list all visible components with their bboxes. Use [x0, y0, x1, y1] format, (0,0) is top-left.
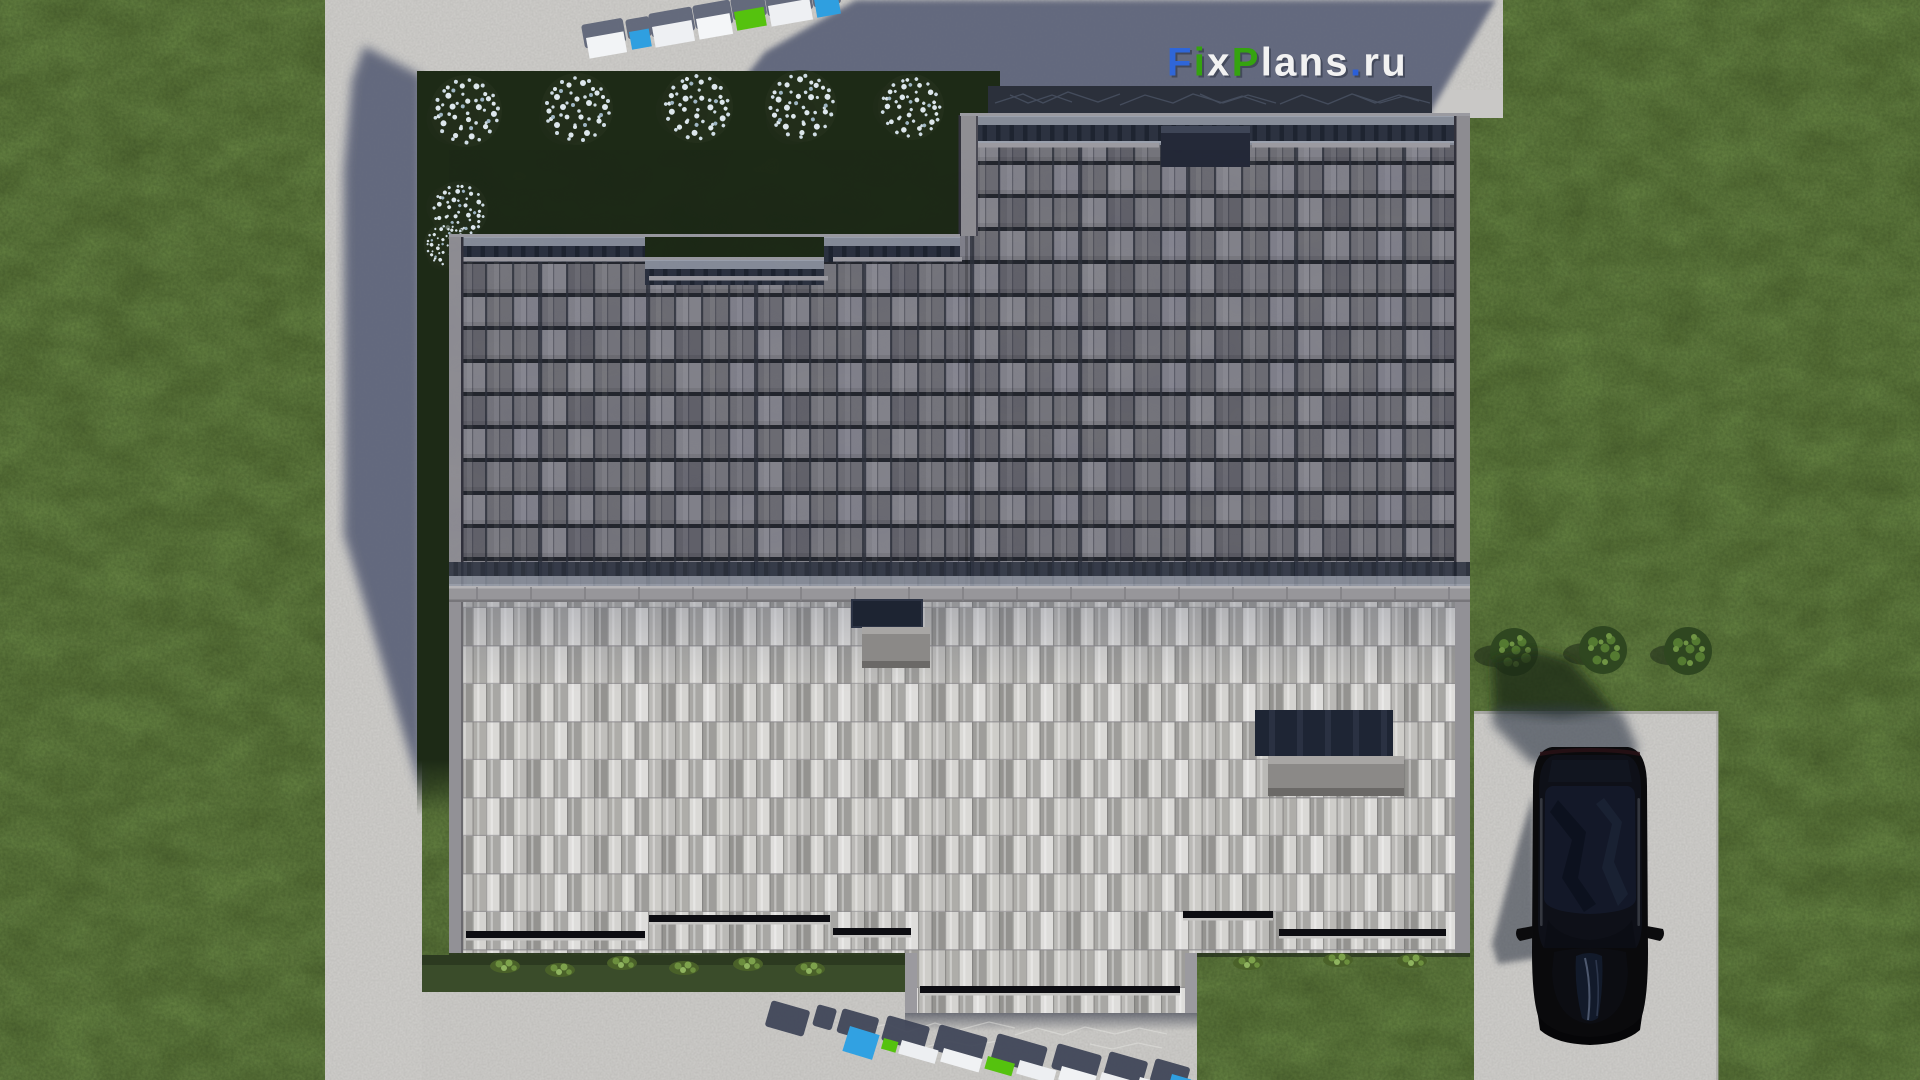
- svg-text:FixPlans.ru: FixPlans.ru: [1167, 41, 1408, 85]
